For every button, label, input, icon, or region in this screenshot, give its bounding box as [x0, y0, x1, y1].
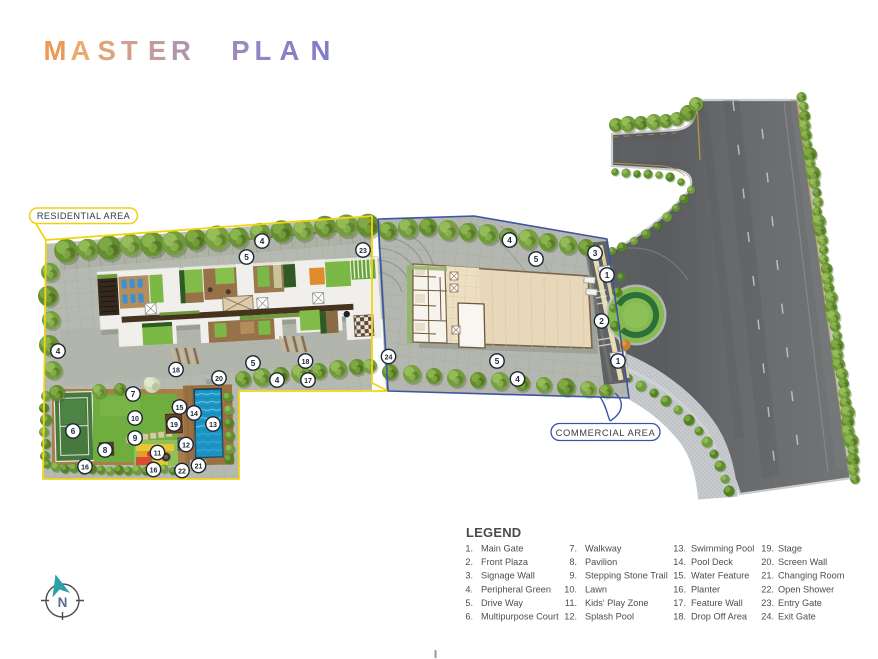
- svg-text:E: E: [148, 35, 166, 66]
- svg-text:22.: 22.: [761, 584, 774, 594]
- svg-text:23.: 23.: [761, 598, 774, 608]
- svg-text:10: 10: [131, 416, 139, 423]
- svg-text:Main Gate: Main Gate: [481, 544, 523, 554]
- svg-text:A: A: [280, 35, 300, 66]
- svg-text:18: 18: [302, 359, 310, 366]
- svg-text:5: 5: [251, 359, 256, 368]
- svg-text:Water Feature: Water Feature: [691, 571, 749, 581]
- svg-text:16: 16: [150, 467, 158, 474]
- svg-text:5: 5: [534, 255, 539, 264]
- svg-text:15.: 15.: [673, 571, 686, 581]
- svg-text:16: 16: [81, 464, 89, 471]
- svg-text:1: 1: [616, 357, 621, 366]
- svg-text:1: 1: [605, 271, 610, 280]
- svg-text:Swimming Pool: Swimming Pool: [691, 544, 754, 554]
- svg-text:Multipurpose Court: Multipurpose Court: [481, 612, 559, 622]
- svg-text:5.: 5.: [465, 598, 473, 608]
- svg-text:Changing Room: Changing Room: [778, 571, 845, 581]
- svg-text:COMMERCIAL AREA: COMMERCIAL AREA: [556, 427, 656, 438]
- svg-text:12: 12: [182, 442, 190, 449]
- svg-text:Front Plaza: Front Plaza: [481, 557, 529, 567]
- svg-text:Planter: Planter: [691, 584, 720, 594]
- svg-text:17: 17: [304, 378, 312, 385]
- svg-text:Stage: Stage: [778, 544, 802, 554]
- svg-text:15: 15: [176, 405, 184, 412]
- svg-text:14: 14: [190, 411, 198, 418]
- svg-text:Stepping Stone Trail: Stepping Stone Trail: [585, 571, 668, 581]
- svg-text:4: 4: [275, 376, 280, 385]
- svg-text:Peripheral Green: Peripheral Green: [481, 584, 551, 594]
- svg-text:21: 21: [195, 463, 203, 470]
- svg-text:9: 9: [133, 434, 138, 443]
- svg-text:8: 8: [103, 446, 108, 455]
- svg-text:23: 23: [359, 248, 367, 255]
- svg-text:A: A: [71, 35, 91, 66]
- svg-text:14.: 14.: [673, 557, 686, 567]
- svg-text:R: R: [171, 35, 191, 66]
- svg-text:5: 5: [495, 357, 500, 366]
- svg-text:4: 4: [56, 347, 61, 356]
- svg-text:Kids' Play Zone: Kids' Play Zone: [585, 598, 649, 608]
- svg-text:4: 4: [507, 236, 512, 245]
- svg-text:18.: 18.: [673, 612, 686, 622]
- svg-text:6: 6: [71, 427, 76, 436]
- svg-text:T: T: [121, 35, 138, 66]
- svg-text:2.: 2.: [465, 557, 473, 567]
- svg-text:12.: 12.: [564, 612, 577, 622]
- svg-text:19: 19: [170, 422, 178, 429]
- svg-text:10.: 10.: [564, 584, 577, 594]
- svg-text:7: 7: [131, 390, 136, 399]
- svg-text:RESIDENTIAL AREA: RESIDENTIAL AREA: [37, 211, 131, 221]
- svg-text:LEGEND: LEGEND: [466, 525, 521, 540]
- svg-text:4: 4: [515, 375, 520, 384]
- svg-text:24.: 24.: [761, 612, 774, 622]
- svg-text:13: 13: [209, 422, 217, 429]
- svg-text:8.: 8.: [569, 557, 577, 567]
- svg-text:Exit Gate: Exit Gate: [778, 612, 816, 622]
- svg-text:Lawn: Lawn: [585, 584, 607, 594]
- svg-text:22: 22: [178, 468, 186, 475]
- svg-text:11.: 11.: [565, 598, 577, 608]
- svg-text:Screen Wall: Screen Wall: [778, 557, 827, 567]
- svg-text:16.: 16.: [673, 584, 686, 594]
- svg-text:Feature Wall: Feature Wall: [691, 598, 743, 608]
- svg-text:3: 3: [593, 249, 598, 258]
- svg-text:18: 18: [172, 367, 180, 374]
- svg-text:L: L: [255, 35, 272, 66]
- svg-text:21.: 21.: [761, 571, 774, 581]
- svg-text:P: P: [231, 35, 249, 66]
- svg-text:M: M: [44, 35, 67, 66]
- svg-text:6.: 6.: [465, 612, 473, 622]
- svg-text:9.: 9.: [569, 571, 577, 581]
- svg-text:17.: 17.: [673, 598, 686, 608]
- svg-text:4.: 4.: [465, 584, 473, 594]
- svg-text:Entry Gate: Entry Gate: [778, 598, 822, 608]
- svg-text:7.: 7.: [569, 544, 577, 554]
- svg-text:24: 24: [385, 354, 393, 361]
- svg-text:11: 11: [154, 450, 162, 457]
- svg-text:19.: 19.: [761, 544, 774, 554]
- svg-text:1.: 1.: [465, 544, 473, 554]
- svg-text:Signage Wall: Signage Wall: [481, 571, 535, 581]
- svg-text:5: 5: [244, 253, 249, 262]
- svg-text:Drive Way: Drive Way: [481, 598, 523, 608]
- svg-text:Walkway: Walkway: [585, 544, 622, 554]
- svg-text:Pool Deck: Pool Deck: [691, 557, 733, 567]
- svg-text:4: 4: [260, 237, 265, 246]
- svg-text:2: 2: [599, 317, 604, 326]
- svg-text:Drop Off Area: Drop Off Area: [691, 612, 748, 622]
- svg-text:20: 20: [215, 376, 223, 383]
- svg-text:N: N: [58, 595, 68, 610]
- svg-text:S: S: [98, 35, 116, 66]
- svg-text:N: N: [311, 35, 331, 66]
- svg-text:Splash Pool: Splash Pool: [585, 612, 634, 622]
- svg-text:Pavilion: Pavilion: [585, 557, 617, 567]
- svg-text:Open Shower: Open Shower: [778, 584, 834, 594]
- svg-text:20.: 20.: [761, 557, 774, 567]
- svg-text:3.: 3.: [465, 571, 473, 581]
- svg-text:13.: 13.: [673, 544, 686, 554]
